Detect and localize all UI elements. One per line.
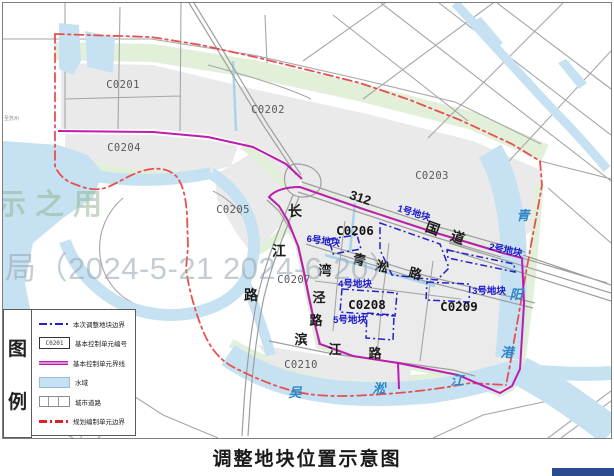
unit-label-c0206: C0206: [336, 223, 374, 238]
road-label-binjiang-1: 滨: [294, 332, 307, 347]
unit-label-c0202: C0202: [251, 104, 285, 116]
road-label-changjiang-2: 江: [272, 243, 286, 259]
water-fill-swatch: [39, 377, 70, 388]
legend-item-urban-road: 城市道路: [39, 394, 135, 409]
road-label-wanjing-1: 湾: [318, 263, 331, 278]
unit-label-c0203: C0203: [415, 170, 449, 182]
legend-item-label: 水域: [75, 377, 88, 387]
road-label-to-suzhou: 至苏州: [4, 115, 19, 122]
unit-label-c0210: C0210: [284, 359, 318, 371]
red-dashdot-line-swatch: [39, 420, 68, 423]
legend-item-label: 本次调整地块边界: [73, 319, 125, 329]
road-label-wanjing-3: 路: [309, 313, 323, 328]
legend-item-unit-boundary: 基本控制单元界线: [39, 355, 135, 370]
unit-label-c0209: C0209: [440, 299, 478, 314]
plot-label-4: 4号地块: [338, 278, 372, 290]
river-label-qingyang-3: 港: [500, 345, 515, 360]
map-frame: C0201 C0202 C0203 C0204 C0205 C0206 C020…: [2, 2, 612, 439]
unit-code-box-swatch: C0201: [39, 337, 70, 349]
unit-label-c0201: C0201: [106, 79, 140, 91]
legend-item-label: 基本控制单元编号: [75, 338, 127, 348]
plot-label-5: 5号地块: [333, 314, 367, 326]
river-label-qingyang-2: 阳: [509, 287, 524, 302]
legend-header-char: 图: [8, 334, 27, 361]
water-patch: [85, 31, 115, 73]
legend: 图 例 本次调整地块边界 C0201 基本控制单元编号 基本控制单元界线: [3, 309, 136, 438]
road-label-changjiang-3: 路: [244, 287, 259, 303]
blue-dashdot-line-swatch: [39, 323, 68, 325]
unit-label-c0204: C0204: [107, 142, 141, 154]
unit-label-c0207: C0207: [277, 274, 311, 286]
road-label-changjiang-1: 长: [288, 203, 303, 219]
legend-item-adjusted-plot-boundary: 本次调整地块边界: [39, 316, 135, 331]
planning-map-page: C0201 C0202 C0203 C0204 C0205 C0206 C020…: [0, 0, 614, 476]
river-label-wusong-3: 江: [450, 373, 465, 388]
river-label-qingyang-1: 青: [516, 208, 531, 223]
plot-label-3: 3号地块: [472, 285, 506, 297]
legend-item-label: 城市道路: [75, 397, 101, 407]
map-title: 调整地块位置示意图: [0, 444, 614, 471]
river-label-wusong-1: 吴: [288, 385, 302, 400]
road-symbol-swatch: [39, 396, 70, 407]
legend-item-unit-code: C0201 基本控制单元编号: [39, 336, 135, 351]
legend-header-char: 例: [8, 387, 27, 414]
magenta-line-swatch: [39, 361, 68, 365]
road-label-binjiang-2: 江: [328, 342, 341, 357]
legend-header: 图 例: [3, 309, 32, 438]
water-patch: [558, 59, 587, 89]
unit-label-c0205: C0205: [216, 204, 250, 216]
legend-item-label: 规划编制单元边界: [73, 416, 125, 426]
unit-boundary-magenta-stub: [398, 363, 399, 389]
road-label-wanjing-2: 泾: [312, 290, 325, 305]
river-branch-east: [523, 371, 611, 374]
corner-accent-bar: [552, 468, 614, 476]
legend-items: 本次调整地块边界 C0201 基本控制单元编号 基本控制单元界线 水域 城市道路: [32, 309, 136, 436]
legend-item-water: 水域: [39, 375, 135, 390]
river-label-wusong-2: 淞: [372, 381, 387, 396]
legend-item-label: 基本控制单元界线: [73, 358, 125, 368]
legend-item-planning-boundary: 规划编制单元边界: [39, 414, 135, 429]
road-label-binjiang-3: 路: [368, 346, 382, 361]
unit-label-c0208: C0208: [348, 297, 386, 312]
